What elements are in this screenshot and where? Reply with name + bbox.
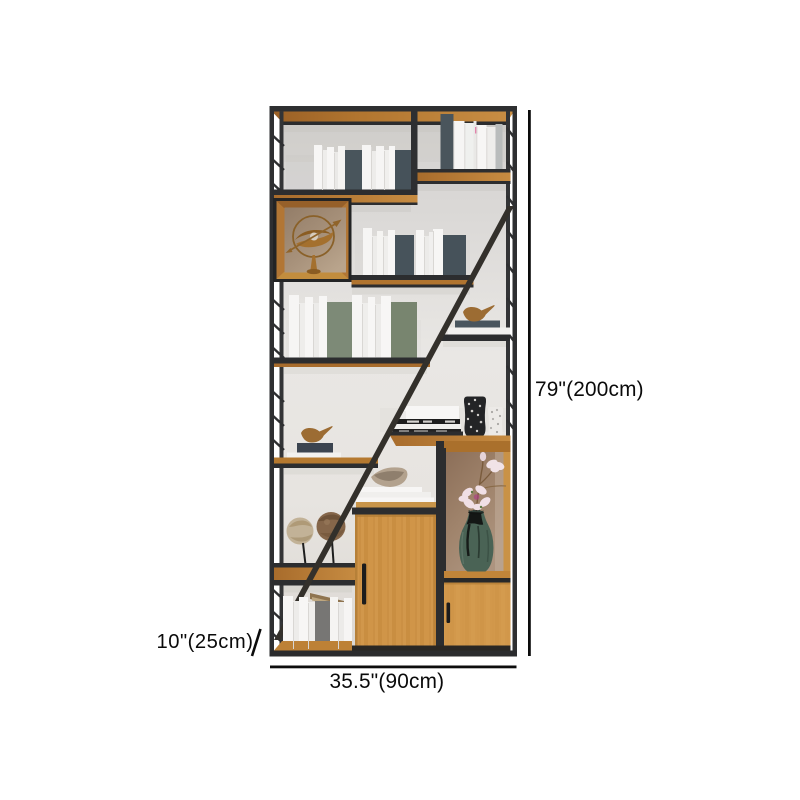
svg-text:79"(200cm): 79"(200cm) [535,378,644,401]
svg-text:35.5"(90cm): 35.5"(90cm) [330,670,445,693]
svg-text:10"(25cm): 10"(25cm) [157,631,254,653]
